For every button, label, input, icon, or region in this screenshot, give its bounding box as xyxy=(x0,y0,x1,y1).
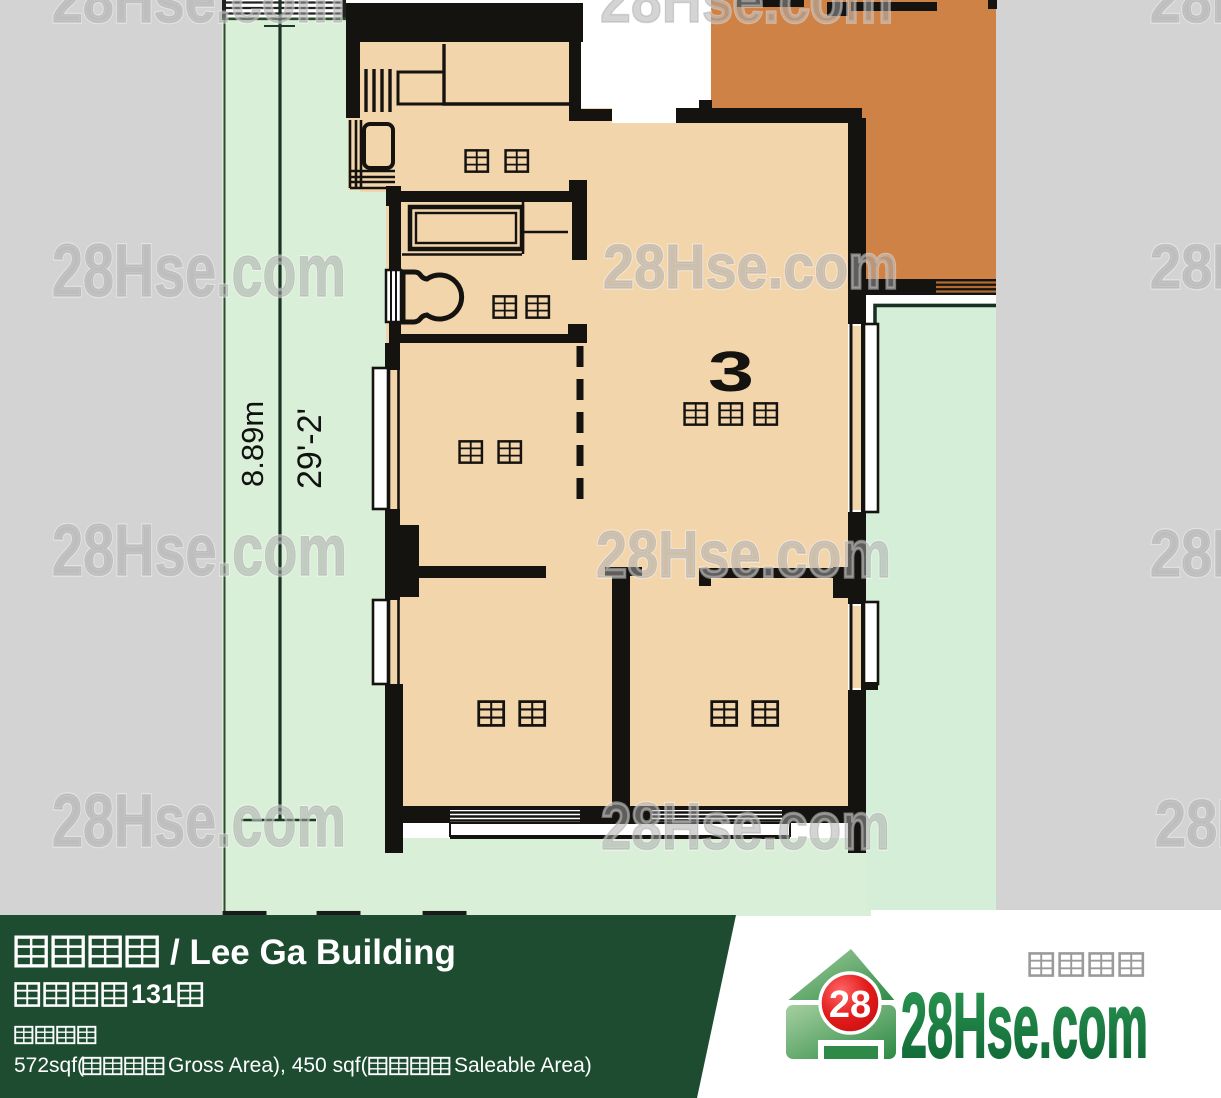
svg-text:131: 131 xyxy=(131,979,176,1009)
svg-text:/ Lee Ga Building: / Lee Ga Building xyxy=(170,933,456,972)
svg-text:3: 3 xyxy=(708,340,754,404)
svg-text:28Hse.com: 28Hse.com xyxy=(52,0,345,36)
svg-text:28Hse.com: 28Hse.com xyxy=(52,779,346,862)
svg-text:28Hse.com: 28Hse.com xyxy=(601,789,890,863)
svg-text:28Hse.com: 28Hse.com xyxy=(603,233,898,302)
svg-text:28Hse.com: 28Hse.com xyxy=(596,517,891,591)
svg-text:572sqf(: 572sqf( xyxy=(14,1054,84,1077)
svg-text:Saleable Area): Saleable Area) xyxy=(454,1054,592,1077)
svg-text:28Hse.com: 28Hse.com xyxy=(1150,233,1221,302)
svg-text:28: 28 xyxy=(829,984,871,1026)
svg-text:28Hse.com: 28Hse.com xyxy=(52,511,347,591)
svg-text:29'-2': 29'-2' xyxy=(291,408,329,489)
svg-text:28Hse.com: 28Hse.com xyxy=(1150,516,1221,590)
svg-text:28Hse.com: 28Hse.com xyxy=(1150,0,1221,36)
svg-text:28Hse.com: 28Hse.com xyxy=(1155,786,1221,860)
svg-text:28Hse.com: 28Hse.com xyxy=(901,975,1148,1077)
svg-text:8.89m: 8.89m xyxy=(235,401,270,487)
svg-text:28Hse.com: 28Hse.com xyxy=(600,0,893,36)
svg-text:Gross Area), 450 sqf(: Gross Area), 450 sqf( xyxy=(168,1054,368,1077)
svg-text:28Hse.com: 28Hse.com xyxy=(52,229,346,312)
